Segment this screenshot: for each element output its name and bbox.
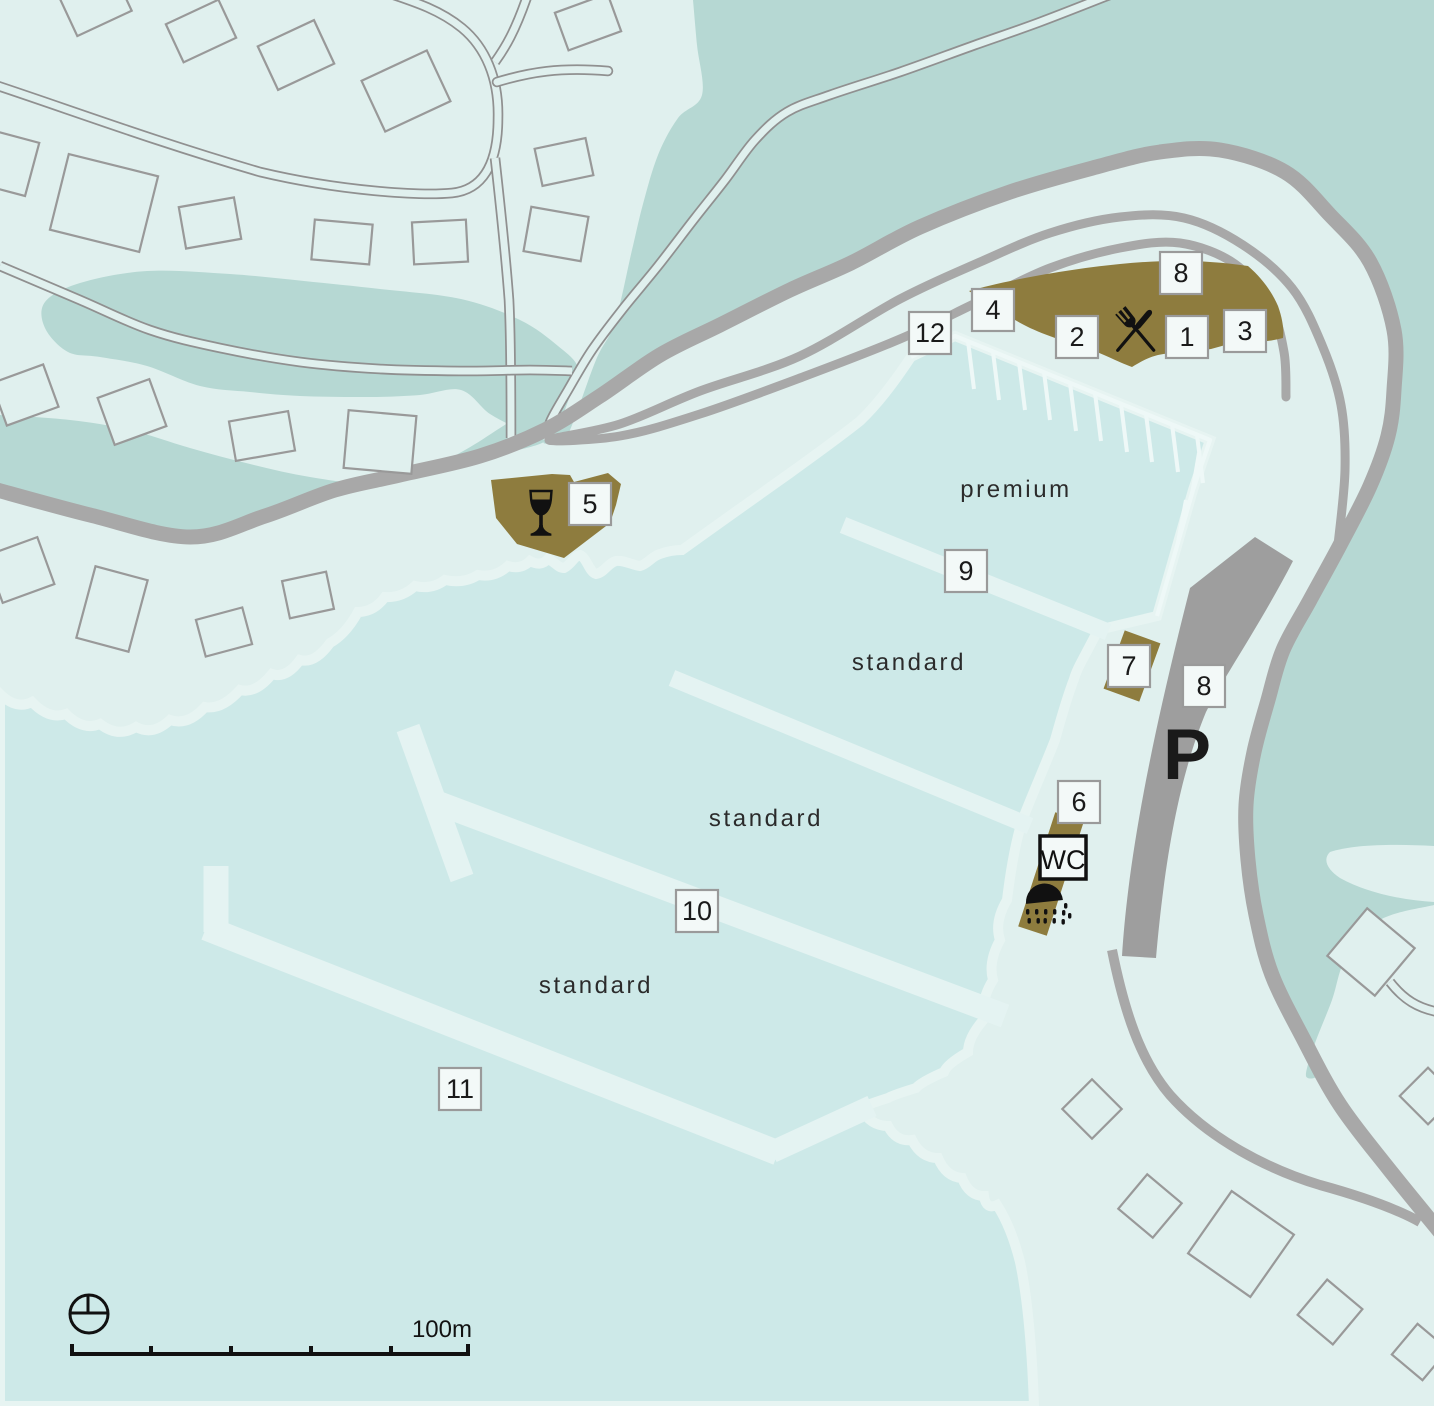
svg-text:10: 10 <box>682 896 712 926</box>
svg-text:4: 4 <box>985 295 1000 325</box>
svg-text:12: 12 <box>915 318 945 348</box>
svg-text:premium: premium <box>960 476 1072 503</box>
svg-text:3: 3 <box>1237 316 1252 346</box>
svg-text:WC: WC <box>1041 845 1086 875</box>
svg-text:6: 6 <box>1071 787 1086 817</box>
svg-text:7: 7 <box>1121 651 1136 681</box>
svg-text:2: 2 <box>1069 322 1084 352</box>
svg-text:standard: standard <box>852 649 966 676</box>
svg-text:standard: standard <box>539 972 653 999</box>
svg-text:100m: 100m <box>412 1316 472 1343</box>
svg-text:8: 8 <box>1173 258 1188 288</box>
svg-text:8: 8 <box>1196 671 1211 701</box>
svg-text:1: 1 <box>1179 322 1194 352</box>
svg-text:11: 11 <box>446 1074 474 1104</box>
svg-text:standard: standard <box>709 805 823 832</box>
svg-text:5: 5 <box>582 489 597 519</box>
svg-text:P: P <box>1163 715 1211 795</box>
svg-text:9: 9 <box>958 556 973 586</box>
